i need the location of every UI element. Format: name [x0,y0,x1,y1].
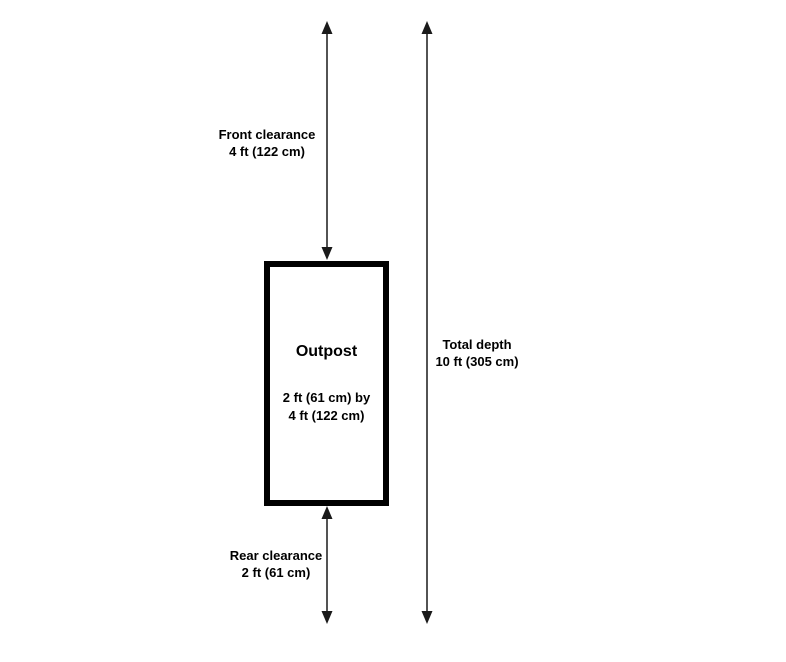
outpost-title: Outpost [296,343,357,361]
outpost-box: Outpost 2 ft (61 cm) by 4 ft (122 cm) [264,261,389,506]
outpost-dimensions-line1: 2 ft (61 cm) by [283,389,370,407]
dimension-arrows [0,0,786,662]
front-clearance-label: Front clearance 4 ft (122 cm) [197,126,337,160]
total-depth-label: Total depth 10 ft (305 cm) [407,336,547,370]
rear-clearance-label-line2: 2 ft (61 cm) [206,564,346,581]
total-depth-label-line1: Total depth [407,336,547,353]
total-depth-label-line2: 10 ft (305 cm) [407,353,547,370]
rear-clearance-label-line1: Rear clearance [206,547,346,564]
total-depth-arrow-icon [422,21,433,624]
outpost-dimensions: 2 ft (61 cm) by 4 ft (122 cm) [283,389,370,425]
outpost-dimensions-line2: 4 ft (122 cm) [283,407,370,425]
rear-clearance-label: Rear clearance 2 ft (61 cm) [206,547,346,581]
front-clearance-label-line2: 4 ft (122 cm) [197,143,337,160]
clearance-diagram: Outpost 2 ft (61 cm) by 4 ft (122 cm) Fr… [0,0,786,662]
front-clearance-label-line1: Front clearance [197,126,337,143]
